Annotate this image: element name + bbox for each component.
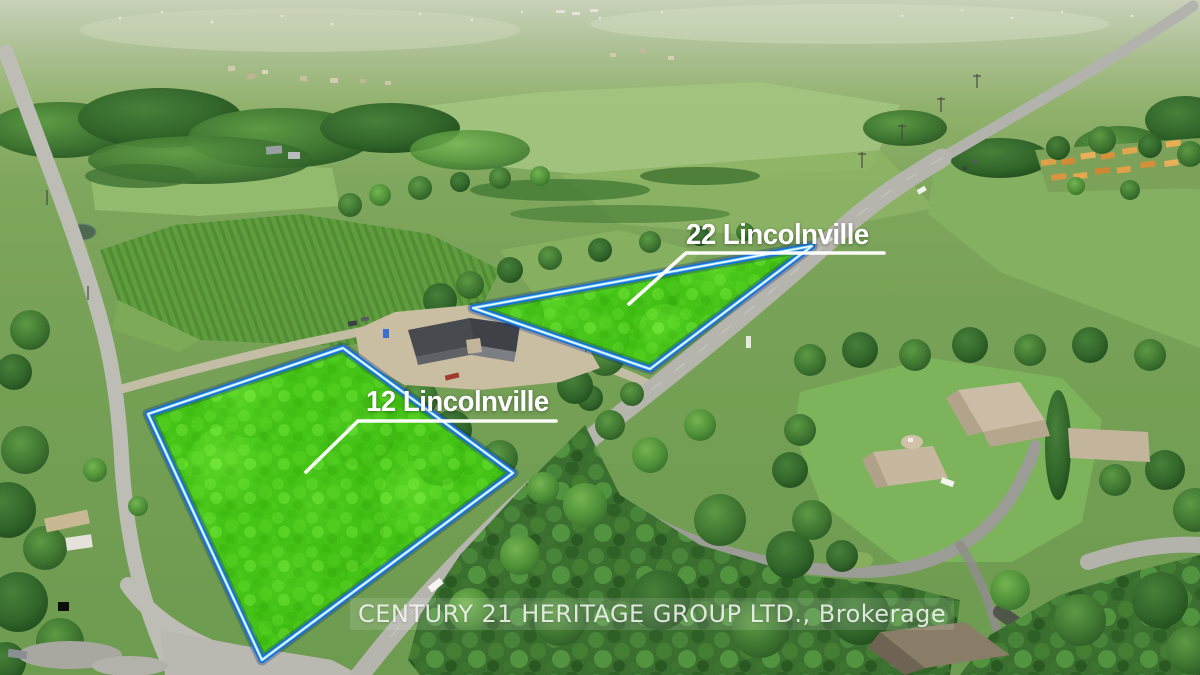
road-sign bbox=[746, 336, 751, 348]
aerial-photo: 22 Lincolnville 12 Lincolnville CENTURY … bbox=[0, 0, 1200, 675]
parcel-12-label: 12 Lincolnville bbox=[366, 386, 549, 419]
brokerage-watermark: CENTURY 21 HERITAGE GROUP LTD., Brokerag… bbox=[350, 598, 954, 630]
landscape-art bbox=[0, 0, 1200, 675]
parcel-22-label: 22 Lincolnville bbox=[686, 219, 869, 252]
porta-potty bbox=[383, 329, 389, 338]
